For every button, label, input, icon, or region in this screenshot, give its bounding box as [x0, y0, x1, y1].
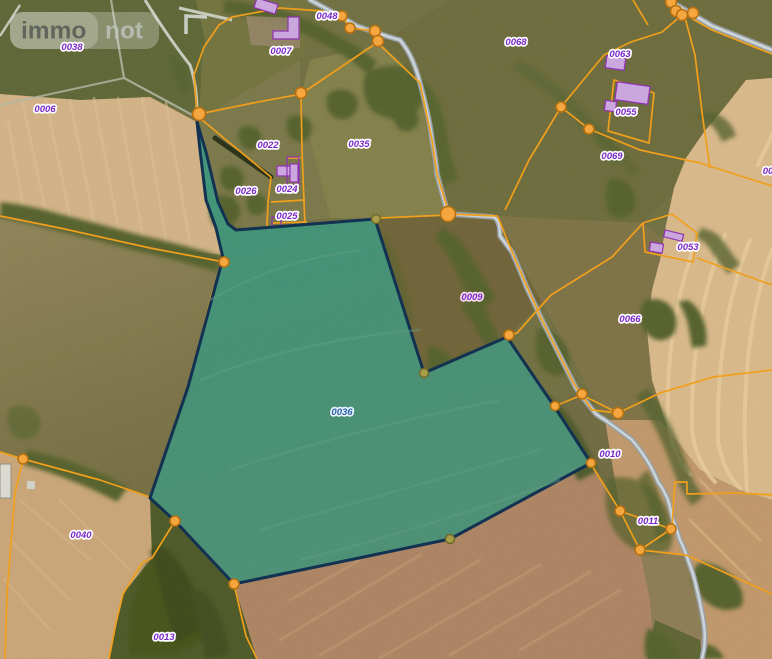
svg-text:0035: 0035	[348, 139, 370, 150]
svg-text:0013: 0013	[153, 632, 175, 643]
svg-text:0048: 0048	[316, 11, 338, 22]
svg-text:0010: 0010	[599, 449, 621, 460]
svg-text:not: not	[105, 18, 143, 45]
svg-text:0011: 0011	[638, 516, 658, 527]
svg-text:0025: 0025	[276, 211, 298, 222]
svg-text:0066: 0066	[619, 314, 641, 325]
svg-text:0007: 0007	[270, 46, 292, 57]
svg-text:0009: 0009	[461, 292, 483, 303]
svg-text:0040: 0040	[70, 530, 92, 541]
svg-text:0053: 0053	[677, 242, 699, 253]
svg-text:0006: 0006	[34, 104, 56, 115]
svg-text:immo: immo	[21, 18, 86, 45]
svg-text:0036: 0036	[331, 407, 353, 418]
svg-text:0055: 0055	[615, 107, 637, 118]
svg-text:0063: 0063	[609, 49, 631, 60]
svg-text:0026: 0026	[235, 186, 257, 197]
svg-text:0069: 0069	[601, 151, 623, 162]
svg-text:0022: 0022	[257, 140, 279, 151]
svg-text:00: 00	[763, 166, 772, 177]
svg-text:0038: 0038	[61, 42, 83, 53]
svg-text:0068: 0068	[505, 37, 527, 48]
svg-text:0024: 0024	[276, 184, 298, 195]
